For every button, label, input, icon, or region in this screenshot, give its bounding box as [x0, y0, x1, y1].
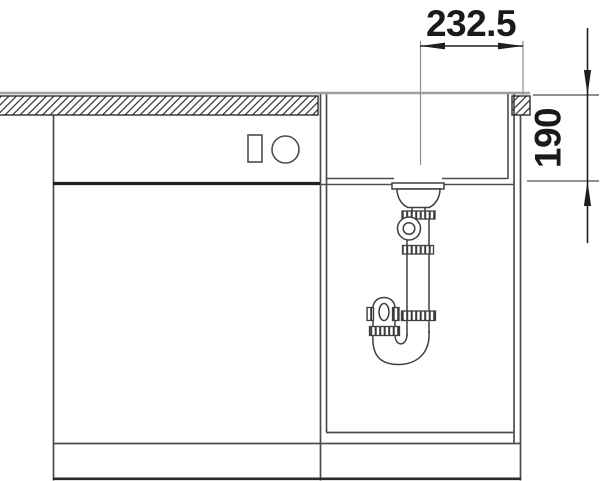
sink-basin — [321, 94, 514, 185]
arrowhead-down-icon — [584, 70, 591, 95]
front-panel-round-knob — [272, 136, 299, 163]
diagram-canvas: 232.5 190 — [0, 0, 600, 481]
coupling-nut — [370, 327, 400, 336]
coupling-nut — [402, 311, 436, 321]
arrowhead-up-icon — [584, 181, 591, 206]
dimension-depth: 190 — [527, 28, 599, 243]
countertop-left-slab — [0, 96, 318, 115]
drain-siphon-assembly — [367, 183, 444, 365]
trap-ear-nut-right — [393, 308, 400, 321]
sink-installation-diagram: 232.5 190 — [0, 0, 600, 481]
base-cabinet — [53, 94, 521, 481]
trap-ear-nut-left — [367, 308, 374, 321]
strainer-bowl — [397, 189, 440, 208]
elbow-union-ring-outer — [398, 217, 421, 240]
trap-riser-loop — [373, 298, 395, 331]
countertop — [0, 93, 530, 115]
front-panel-square-detail — [248, 135, 262, 162]
depth-dimension-label: 190 — [528, 108, 569, 168]
drain-flange — [392, 183, 444, 189]
coupling-nut — [403, 246, 434, 255]
width-dimension-label: 232.5 — [426, 3, 516, 44]
